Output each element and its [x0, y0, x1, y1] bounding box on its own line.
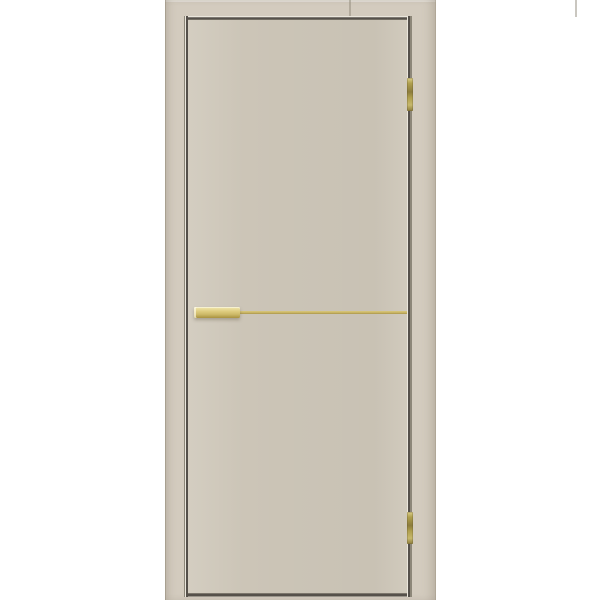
hinge-bottom [407, 512, 413, 544]
frame-head-joint-right [575, 0, 577, 17]
reveal-gap-top [184, 16, 412, 20]
flush-pull-handle [194, 307, 240, 318]
reveal-gap-bottom [188, 593, 407, 597]
product-photo [0, 0, 600, 600]
brass-inlay-strip [240, 311, 407, 314]
frame-head-joint-left [349, 0, 351, 17]
hinge-top [407, 78, 413, 111]
reveal-gap-left [184, 16, 188, 597]
